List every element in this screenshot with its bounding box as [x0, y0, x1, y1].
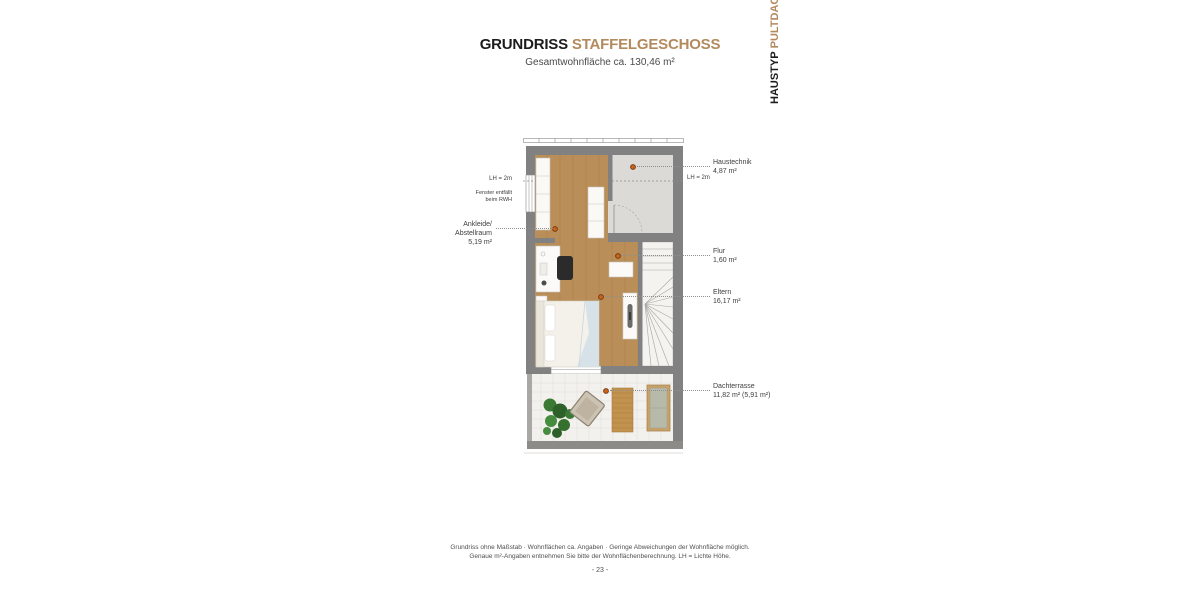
fenster-line2: beim RWH [432, 197, 512, 204]
housetype-black: HAUSTYP [769, 51, 781, 104]
room-name: Flur [713, 247, 737, 256]
label-eltern: Eltern 16,17 m² [713, 288, 741, 306]
fenster-line1: Fenster entfällt [432, 190, 512, 197]
cabinet [588, 187, 604, 238]
marker-flur [616, 254, 621, 259]
hall-shelf [609, 262, 633, 277]
leader-dachterrasse [610, 390, 710, 391]
window-left [526, 175, 535, 212]
room-area: 16,17 m² [713, 297, 741, 306]
label-fenster-note: Fenster entfällt beim RWH [432, 190, 512, 204]
marker-ankleide [553, 227, 558, 232]
housetype-accent: PULTDACH [769, 0, 781, 48]
page-header: GRUNDRISS STAFFELGESCHOSS Gesamtwohnfläc… [400, 36, 800, 68]
leader-ankleide [496, 228, 553, 229]
marker-dachterrasse [604, 389, 609, 394]
label-dachterrasse: Dachterrasse 11,82 m² (5,91 m²) [713, 382, 770, 400]
footer-disclaimer: Grundriss ohne Maßstab · Wohnflächen ca.… [300, 544, 900, 561]
title-black: GRUNDRISS [480, 36, 568, 53]
terrace-lounger [612, 388, 633, 432]
desk [536, 246, 560, 292]
leader-flur [622, 255, 710, 256]
label-ankleide: Ankleide/ Abstellraum 5,19 m² [412, 220, 492, 247]
page: GRUNDRISS STAFFELGESCHOSS Gesamtwohnfläc… [0, 0, 1200, 600]
marker-eltern [599, 295, 604, 300]
room-area: 1,60 m² [713, 256, 737, 265]
label-flur: Flur 1,60 m² [713, 247, 737, 265]
label-lh-right: LH = 2m [687, 175, 710, 182]
terrace-sofa [647, 385, 670, 431]
terrace-wall-bottom [527, 441, 683, 449]
stair-railing [623, 293, 637, 339]
room-name: Haustechnik [713, 158, 752, 167]
page-subtitle: Gesamtwohnfläche ca. 130,46 m² [400, 57, 800, 68]
room-area: 11,82 m² (5,91 m²) [713, 391, 770, 400]
room-name-line1: Ankleide/ [412, 220, 492, 229]
label-lh-left: LH = 2m [452, 176, 512, 183]
room-name-line2: Abstellraum [412, 229, 492, 238]
stair-wall [638, 242, 643, 366]
label-haustechnik: Haustechnik 4,87 m² [713, 158, 752, 176]
housetype-vertical-label: HAUSTYP PULTDACH [769, 36, 783, 104]
desk-chair [557, 256, 573, 280]
disclaimer-line2: Genaue m²-Angaben entnehmen Sie bitte de… [300, 553, 900, 562]
terrace-wall-left [527, 374, 532, 441]
page-title: GRUNDRISS STAFFELGESCHOSS [400, 36, 800, 53]
title-accent: STAFFELGESCHOSS [572, 36, 720, 53]
room-area: 5,19 m² [412, 238, 492, 247]
leader-haustechnik [637, 166, 710, 167]
bed [536, 301, 599, 367]
marker-haustechnik [631, 165, 636, 170]
disclaimer-line1: Grundriss ohne Maßstab · Wohnflächen ca.… [300, 544, 900, 553]
wardrobe [536, 158, 550, 230]
dimension-line [524, 139, 684, 143]
room-name: Dachterrasse [713, 382, 770, 391]
leader-eltern [605, 296, 710, 297]
page-number: - 23 - [300, 567, 900, 574]
staircase [638, 242, 673, 366]
room-area: 4,87 m² [713, 167, 752, 176]
room-name: Eltern [713, 288, 741, 297]
